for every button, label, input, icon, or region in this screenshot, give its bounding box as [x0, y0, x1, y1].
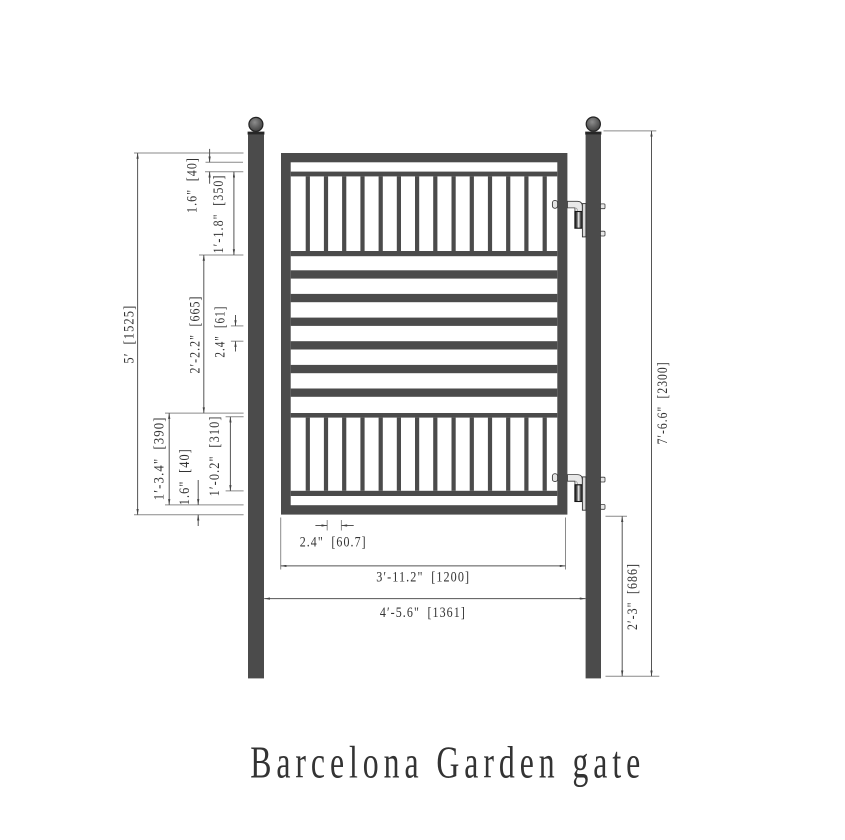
svg-text:Barcelona Garden gate: Barcelona Garden gate — [250, 738, 645, 788]
svg-text:1.6" [40]: 1.6" [40] — [184, 157, 200, 213]
svg-text:2′-2.2" [665]: 2′-2.2" [665] — [187, 296, 203, 374]
svg-text:1′-1.8" [350]: 1′-1.8" [350] — [211, 174, 227, 253]
svg-text:3′-11.2" [1200]: 3′-11.2" [1200] — [376, 569, 470, 585]
svg-text:2′-3" [686]: 2′-3" [686] — [625, 563, 641, 630]
svg-text:5′ [1525]: 5′ [1525] — [122, 305, 138, 364]
svg-text:1′-0.2" [310]: 1′-0.2" [310] — [207, 415, 223, 496]
svg-text:2.4" [61]: 2.4" [61] — [212, 306, 228, 358]
svg-text:2.4" [60.7]: 2.4" [60.7] — [300, 535, 367, 551]
svg-text:1′-3.4" [390]: 1′-3.4" [390] — [151, 416, 167, 500]
svg-text:4′-5.6" [1361]: 4′-5.6" [1361] — [380, 605, 466, 621]
svg-text:1.6" [40]: 1.6" [40] — [177, 448, 193, 505]
svg-text:7′-6.6" [2300]: 7′-6.6" [2300] — [655, 361, 671, 444]
